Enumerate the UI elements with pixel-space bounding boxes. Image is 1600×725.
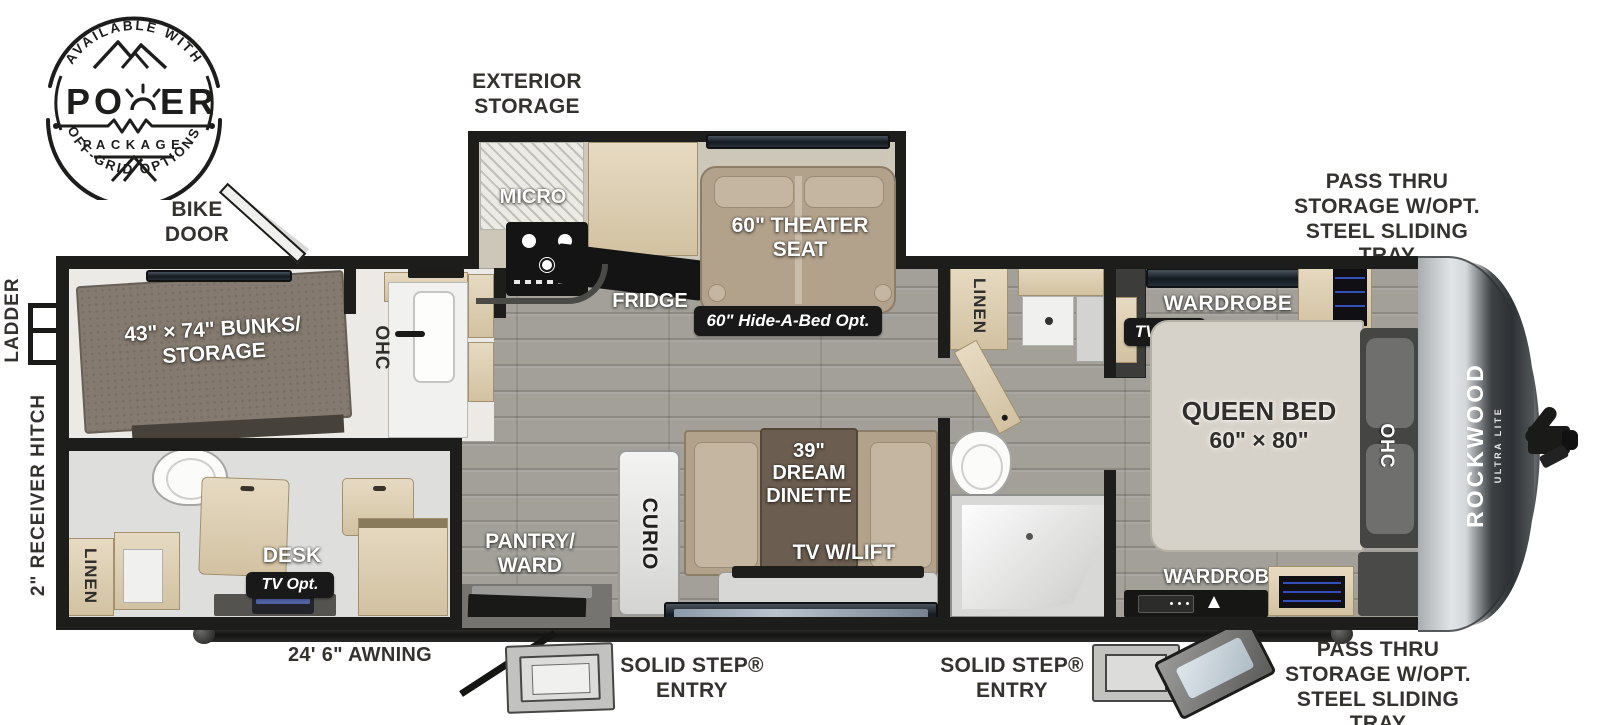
curio-label: CURIO — [637, 474, 661, 594]
theater-seat: 60" THEATER SEAT — [700, 166, 896, 314]
wardrobe-bottom-cabinet — [1268, 566, 1354, 616]
exterior-storage-label: EXTERIOR STORAGE — [447, 70, 607, 120]
linen-bath-label: LINEN — [969, 262, 989, 350]
theater-seat-back-right — [804, 176, 884, 208]
desk-chair-slot-right — [373, 486, 386, 491]
theater-seat-back-left — [714, 176, 794, 208]
wall-bath-right-left-upper — [938, 256, 950, 358]
pass-thru-bottom-line3: STEEL SLIDING TRAY — [1272, 688, 1484, 725]
theater-seat-cup-right — [874, 284, 892, 302]
micro-label: MICRO — [488, 186, 578, 208]
badge-package-text: PACKAGE — [83, 137, 186, 152]
desk-label: DESK — [248, 544, 336, 568]
wardrobe-top-led2 — [1335, 291, 1365, 293]
queen-bed-line1: QUEEN BED — [1162, 396, 1356, 427]
bedroom-vanity-sink — [1138, 595, 1194, 613]
fridge-cabinet — [588, 142, 698, 256]
bath-right-sink — [1022, 296, 1074, 346]
badge-power-right: ER — [160, 81, 218, 122]
ohc-bedroom-label: OHC — [1375, 412, 1397, 480]
bath-left-faucet — [395, 331, 425, 337]
power-package-badge: AVAILABLE WITH OFF-GRID OPTIONS PO ER PA… — [36, 4, 232, 200]
shower — [950, 494, 1116, 618]
dinette-cushion-left — [694, 442, 758, 568]
bunk-bed: 43" × 74" BUNKS/ STORAGE — [76, 270, 353, 434]
theater-seat-label: 60" THEATER SEAT — [710, 214, 890, 261]
ohc-bath-label: OHC — [370, 313, 392, 383]
dinette-line1: 39" — [750, 440, 868, 462]
badge-mountains-icon — [94, 42, 166, 68]
bath-right-faucet — [1045, 317, 1053, 325]
bunks-label: 43" × 74" BUNKS/ STORAGE — [94, 311, 332, 372]
entry-rear-line2: ENTRY — [932, 679, 1092, 704]
entry-front-wall-gap — [462, 617, 610, 628]
pass-thru-top-label: PASS THRU STORAGE W/OPT. STEEL SLIDING T… — [1282, 170, 1492, 269]
shower-drain — [1026, 533, 1033, 540]
entry-rear-label: SOLID STEP® ENTRY — [932, 654, 1092, 704]
wardrobe-bottom-led3 — [1283, 600, 1341, 602]
stove-burner-left — [522, 234, 536, 248]
wall-top-rear — [56, 256, 479, 269]
entry-front-step-top — [532, 663, 591, 695]
desk-laptop-screen — [256, 599, 310, 604]
bath-right-toilet — [950, 430, 1012, 498]
wardrobe-bottom-led1 — [1283, 582, 1341, 584]
floorplan-canvas: AVAILABLE WITH OFF-GRID OPTIONS PO ER PA… — [0, 0, 1600, 725]
wall-bath-right-right-upper — [1104, 256, 1116, 378]
bedroom-vanity-knobs — [1170, 602, 1173, 605]
entry-rear-line1: SOLID STEP® — [932, 654, 1092, 679]
wall-bath-right-left-lower — [938, 418, 950, 617]
desk-tv-opt-badge: TV Opt. — [246, 572, 334, 598]
wall-bottom — [56, 617, 1430, 630]
pantry-label: PANTRY/ WARD — [470, 530, 590, 577]
badge-line-dot-left — [53, 123, 59, 129]
hide-a-bed-badge: 60" Hide-A-Bed Opt. — [694, 306, 882, 336]
desk-chair-slot-left — [240, 486, 254, 491]
entry-front-line1: SOLID STEP® — [612, 654, 772, 679]
wardrobe-top-led3 — [1335, 305, 1365, 307]
exterior-storage-line2: STORAGE — [447, 95, 607, 120]
pass-thru-bottom-line2: STORAGE W/OPT. — [1272, 663, 1484, 688]
badge-line-dot-right — [209, 123, 215, 129]
dinette-line2: DREAM — [750, 462, 868, 484]
brand-series: ULTRA LITE — [1493, 383, 1505, 507]
wall-bath-right-right-lower — [1104, 470, 1116, 617]
pantry-cabinet-edge — [359, 519, 447, 528]
tv-lift-label: TV W/LIFT — [758, 541, 930, 565]
bath-right-door-handle — [1001, 414, 1009, 422]
wall-top-front — [895, 256, 1430, 269]
theater-seat-cup-left — [708, 284, 726, 302]
badge-sun-rays — [127, 85, 159, 96]
dinette-label: 39" DREAM DINETTE — [750, 440, 868, 507]
pantry-cabinet — [358, 518, 448, 616]
exterior-storage-line1: EXTERIOR — [447, 70, 607, 95]
slideout-wall-right — [895, 131, 906, 267]
pantry-line1: PANTRY/ — [470, 530, 590, 554]
tv-lift-screen — [732, 566, 924, 578]
pass-thru-top-line2: STORAGE W/OPT. — [1282, 195, 1492, 220]
slideout-wall-left — [468, 131, 479, 267]
badge-mountain-inner-icon — [122, 53, 148, 68]
wall-bath-left-a — [344, 256, 356, 314]
theater-seat-line2: SEAT — [710, 238, 890, 262]
bath-left-counter-edge — [408, 268, 464, 278]
bath-right-side-cabinet — [1076, 296, 1104, 362]
bath-left-vanity — [388, 282, 468, 438]
bath-left-sink — [413, 291, 455, 383]
bath-right-toilet-seat — [961, 444, 1003, 490]
bunkroom-window — [146, 270, 292, 282]
slideout-window — [706, 134, 890, 149]
shower-pan — [962, 505, 1104, 609]
linen-rear-label: LINEN — [80, 532, 100, 620]
rear-bench — [114, 532, 180, 610]
queen-bed-line2: 60" × 80" — [1162, 427, 1356, 454]
entry-front-step-mid — [519, 654, 601, 703]
pass-thru-top-line1: PASS THRU — [1282, 170, 1492, 195]
fridge-label: FRIDGE — [598, 290, 702, 312]
entry-front-label: SOLID STEP® ENTRY — [612, 654, 772, 704]
power-package-badge-art: AVAILABLE WITH OFF-GRID OPTIONS PO ER PA… — [36, 4, 232, 200]
bedroom-nightstand — [1358, 552, 1422, 616]
brand-name: ROCKWOOD — [1462, 345, 1488, 545]
entry-front-line2: ENTRY — [612, 679, 772, 704]
queen-bed-label: QUEEN BED 60" × 80" — [1162, 396, 1356, 454]
bedroom-vanity-faucet — [1208, 596, 1220, 608]
badge-arc-top-text: AVAILABLE WITH — [62, 18, 206, 67]
receiver-hitch-label: 2" RECEIVER HITCH — [28, 387, 50, 603]
wardrobe-top-led1 — [1335, 277, 1365, 279]
awning-label: 24' 6" AWNING — [270, 644, 450, 668]
bike-door-line2: DOOR — [137, 223, 257, 248]
entry-front-steps — [505, 642, 615, 714]
dinette-line3: DINETTE — [750, 485, 868, 507]
ladder-label: LADDER — [2, 255, 24, 385]
bedroom-vanity-counter — [1124, 590, 1268, 618]
wardrobe-bottom-led2 — [1283, 591, 1341, 593]
wardrobe-top-label: WARDROBE — [1148, 292, 1308, 316]
badge-sun-icon — [132, 99, 154, 110]
badge-power-left: PO — [66, 81, 126, 122]
wall-bunkroom-divider — [62, 438, 462, 451]
pass-thru-bottom-label: PASS THRU STORAGE W/OPT. STEEL SLIDING T… — [1272, 638, 1484, 725]
rear-bench-panel — [123, 549, 163, 603]
bath-left-cabinet-lower — [468, 342, 494, 402]
entry-rear-door-window — [1175, 637, 1255, 700]
wall-office-right — [450, 450, 462, 617]
kitchen-counter-edge — [476, 264, 608, 304]
theater-seat-line1: 60" THEATER — [710, 214, 890, 238]
pantry-line2: WARD — [470, 554, 590, 578]
badge-inner-arc-left — [56, 76, 61, 130]
queen-bed: QUEEN BED 60" × 80" — [1150, 320, 1364, 552]
desk-laptop — [252, 596, 314, 614]
